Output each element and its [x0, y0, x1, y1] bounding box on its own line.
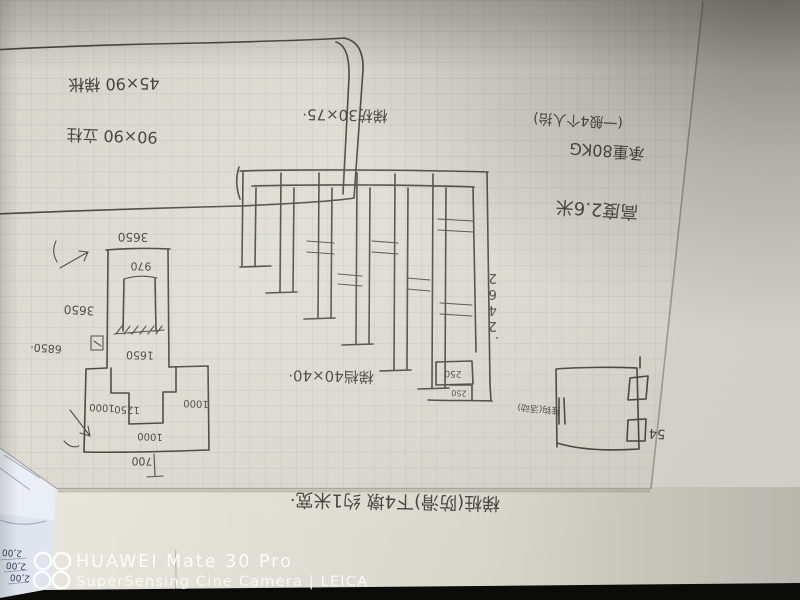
photo-of-sketch: 2,00 2,00 2,00 45×90 梯枨 90×90 立柱 梯枋30×75… [0, 0, 800, 600]
watermark-device: HUAWEI Mate 30 Pro [76, 552, 293, 572]
fold-shadow [0, 0, 800, 600]
watermark-camera: SuperSensing Cine Camera | LEICA [76, 574, 368, 590]
photo-canvas: 2,00 2,00 2,00 45×90 梯枨 90×90 立柱 梯枋30×75… [0, 0, 800, 600]
